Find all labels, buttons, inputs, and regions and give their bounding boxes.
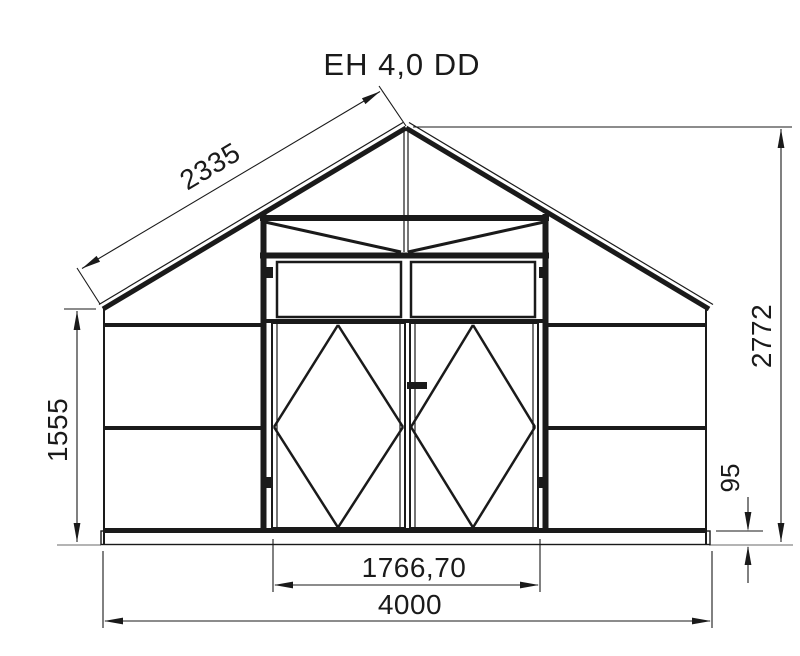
arrow-height-top bbox=[778, 129, 785, 148]
door-leaf-right bbox=[410, 323, 538, 528]
arrow-roof-lower bbox=[82, 256, 100, 269]
arrow-height-bottom bbox=[778, 523, 785, 542]
dim-roof-slope-label: 2335 bbox=[174, 136, 245, 196]
hinge-right-top bbox=[539, 267, 546, 278]
diamond-brace-right-bl bbox=[411, 427, 473, 528]
hinge-left-top bbox=[266, 267, 273, 278]
dim-roof-ext-eave bbox=[77, 268, 100, 304]
diamond-brace-right-br bbox=[473, 427, 535, 528]
greenhouse-elevation-drawing: EH 4,0 DD 2335 1555 2772 95 1766,70 4000 bbox=[0, 0, 800, 656]
diamond-brace-left-tl bbox=[274, 325, 338, 427]
diamond-brace-left-tr bbox=[338, 325, 403, 427]
arrow-width-left bbox=[104, 618, 123, 625]
diamond-brace-right-tr bbox=[473, 325, 535, 427]
structure-layer bbox=[57, 86, 793, 628]
hinge-right-bottom bbox=[539, 477, 546, 488]
diamond-brace-right-tl bbox=[411, 325, 473, 427]
dim-base-height-label: 95 bbox=[715, 464, 745, 493]
dim-total-height-label: 2772 bbox=[746, 304, 777, 368]
diamond-brace-left-bl bbox=[274, 427, 338, 528]
door-leaf-left bbox=[272, 323, 405, 528]
arrow-base-upper bbox=[745, 512, 752, 531]
roof-left-outer-line bbox=[99, 123, 403, 305]
door-handle bbox=[407, 382, 427, 389]
arrow-door-right bbox=[520, 582, 539, 589]
dim-door-width-label: 1766,70 bbox=[362, 552, 467, 583]
drawing-canvas: EH 4,0 DD 2335 1555 2772 95 1766,70 4000 bbox=[0, 0, 800, 656]
dim-roof-ext-apex bbox=[379, 86, 406, 126]
base-plate bbox=[101, 531, 710, 545]
roof-right-outer-line bbox=[409, 123, 713, 305]
drawing-title: EH 4,0 DD bbox=[323, 47, 480, 82]
arrow-wall-top bbox=[74, 311, 81, 330]
transom-window-left bbox=[277, 262, 401, 317]
transom-window-right bbox=[411, 262, 535, 317]
arrow-roof-upper bbox=[362, 92, 380, 105]
dim-roof-line bbox=[82, 92, 380, 269]
arrow-wall-bottom bbox=[74, 523, 81, 542]
arrow-door-left bbox=[274, 582, 293, 589]
arrow-width-right bbox=[692, 618, 711, 625]
gable-diagonal-right bbox=[408, 222, 544, 252]
dim-wall-height-label: 1555 bbox=[42, 398, 73, 462]
arrow-base-lower bbox=[745, 546, 752, 565]
diamond-brace-left-br bbox=[338, 427, 403, 528]
hinge-left-bottom bbox=[266, 477, 273, 488]
dim-total-width-label: 4000 bbox=[378, 589, 442, 620]
gable-diagonal-left bbox=[265, 222, 401, 252]
